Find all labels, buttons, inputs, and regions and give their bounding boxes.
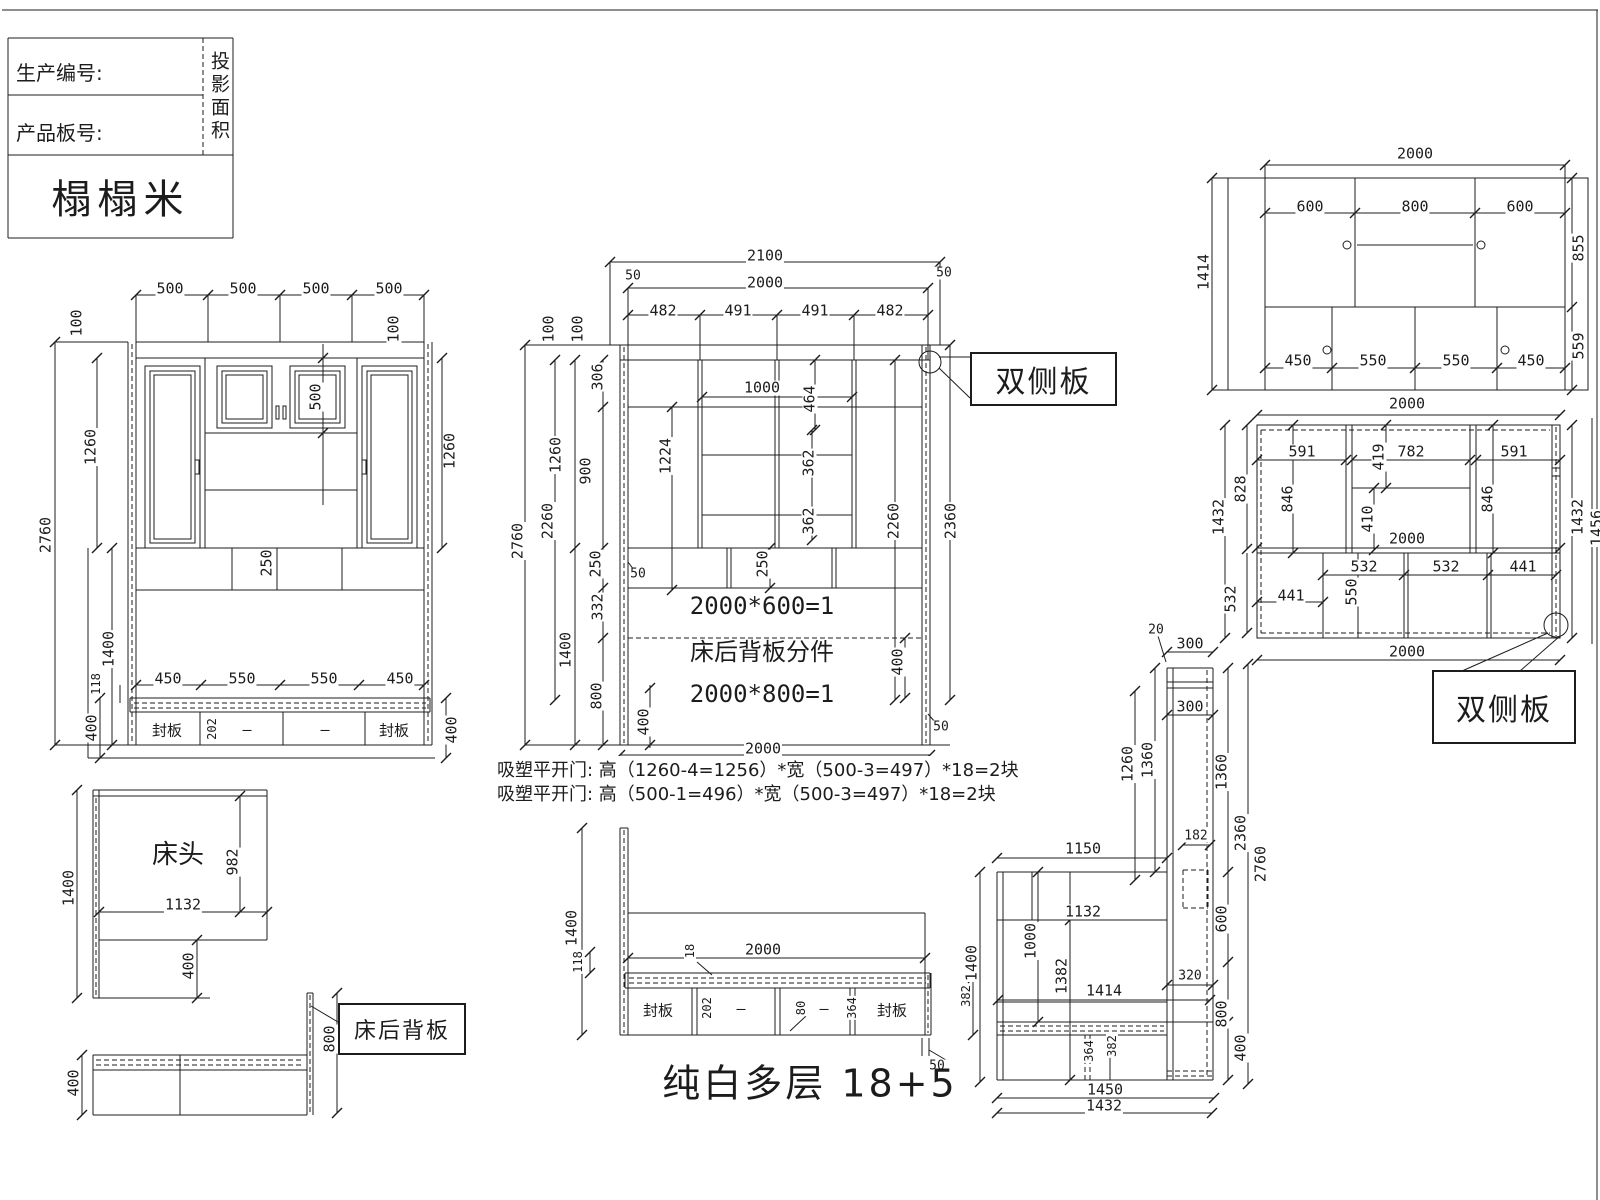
part-label: 封板 xyxy=(642,1004,674,1019)
dim-label: 482 xyxy=(875,304,904,319)
dim-label: 1400 xyxy=(559,631,574,669)
door-spec-note-2: 吸塑平开门: 高（500-1=496）*宽（500-3=497）*18=2块 xyxy=(497,780,996,806)
dim-label: 382 xyxy=(960,984,972,1008)
dim-label: 2000*600=1 xyxy=(689,594,836,618)
part-label: — xyxy=(818,1002,829,1017)
dim-label: 364 xyxy=(1083,1039,1095,1063)
dim-label: 2260 xyxy=(887,502,902,540)
dim-label: 2760 xyxy=(1254,845,1269,883)
dim-label: 800 xyxy=(1215,999,1230,1028)
dim-label: 1414 xyxy=(1085,984,1123,999)
dim-label: 2000 xyxy=(1388,645,1426,660)
part-label: 封板 xyxy=(151,724,183,739)
dim-label: 2760 xyxy=(39,516,54,554)
dim-label: 550 xyxy=(309,672,338,687)
dim-label: 250 xyxy=(756,549,771,578)
callout-bed-back-panel: 床后背板 xyxy=(338,1003,466,1055)
production-no-label: 生产编号: xyxy=(16,57,103,86)
dim-label: 532 xyxy=(1431,560,1460,575)
dim-label: 2760 xyxy=(511,522,526,560)
callout-double-side-panel-1: 双侧板 xyxy=(970,352,1117,406)
dim-label: 1260 xyxy=(549,436,564,474)
dim-label: 2000 xyxy=(744,943,782,958)
dim-label: 2000 xyxy=(746,276,784,291)
callout-double-side-panel-2: 双侧板 xyxy=(1432,670,1576,744)
dim-label: 500 xyxy=(155,282,184,297)
dim-label: 300 xyxy=(1175,637,1204,652)
part-label: 封板 xyxy=(876,1004,908,1019)
dim-label: 250 xyxy=(260,548,275,577)
dim-label: 1360 xyxy=(1215,753,1230,791)
dim-label: 1432 xyxy=(1085,1099,1123,1114)
dim-label: 600 xyxy=(1295,200,1324,215)
dim-label: 118 xyxy=(90,672,102,696)
dim-label: 2000 xyxy=(1388,397,1426,412)
dim-label: 1260 xyxy=(1121,745,1136,783)
dim-label: 1432 xyxy=(1212,498,1227,536)
part-label: — xyxy=(241,723,252,738)
dim-label: 591 xyxy=(1499,445,1528,460)
door-spec-note-1: 吸塑平开门: 高（1260-4=1256）*宽（500-3=497）*18=2块 xyxy=(497,756,1019,782)
dim-label: 600 xyxy=(1505,200,1534,215)
dim-label: 800 xyxy=(1400,200,1429,215)
dim-label: 982 xyxy=(226,847,241,876)
dim-label: 1414 xyxy=(1197,253,1212,291)
dim-label: 1000 xyxy=(743,381,781,396)
dim-label: 550 xyxy=(1345,577,1360,606)
dim-label: 400 xyxy=(182,951,197,980)
cad-sheet: 生产编号: 产品板号: 投影面积 榻榻米 双侧板 双侧板 床后背板 吸塑平开门:… xyxy=(0,0,1600,1200)
dim-label: 2000 xyxy=(1388,532,1426,547)
part-label: — xyxy=(735,1002,746,1017)
dim-label: 18 xyxy=(684,943,696,959)
dim-label: 50 xyxy=(629,568,647,581)
dim-label: 1400 xyxy=(965,944,980,982)
dim-label: 320 xyxy=(1177,970,1202,983)
dim-label: 100 xyxy=(571,314,586,343)
dim-label: 20 xyxy=(1147,624,1165,637)
material-spec-title: 纯白多层 18+5 xyxy=(662,1053,957,1108)
dim-label: 450 xyxy=(1283,354,1312,369)
dim-label: 500 xyxy=(374,282,403,297)
dim-label: 80 xyxy=(795,1000,807,1016)
dim-label: 450 xyxy=(153,672,182,687)
dim-label: 362 xyxy=(802,506,817,535)
dim-label: 306 xyxy=(591,362,606,391)
part-label: 床头 xyxy=(151,842,205,868)
dim-label: 846 xyxy=(1281,484,1296,513)
dim-label: 1224 xyxy=(659,437,674,475)
dim-label: 828 xyxy=(1234,474,1249,503)
dim-label: 100 xyxy=(542,314,557,343)
dim-label: 2000 xyxy=(1396,147,1434,162)
dim-label: 855 xyxy=(1572,233,1587,262)
dim-label: 600 xyxy=(1215,904,1230,933)
dim-label: 202 xyxy=(701,996,713,1020)
dim-label: 400 xyxy=(85,713,100,742)
dim-label: 441 xyxy=(1508,560,1537,575)
dim-label: 464 xyxy=(803,384,818,413)
dim-label: 491 xyxy=(800,304,829,319)
dim-label: 100 xyxy=(387,314,402,343)
dim-label: 2000*800=1 xyxy=(689,682,836,706)
dim-label: 50 xyxy=(624,270,642,283)
dim-label: 846 xyxy=(1481,484,1496,513)
dim-label: 2260 xyxy=(541,502,556,540)
dim-label: 382 xyxy=(1106,1034,1118,1058)
dim-label: 364 xyxy=(846,996,858,1020)
dim-label: 491 xyxy=(723,304,752,319)
dim-label: 250 xyxy=(589,549,604,578)
dim-label: 900 xyxy=(579,456,594,485)
dim-label: 1450 xyxy=(1086,1083,1124,1098)
dim-label: 2360 xyxy=(1234,814,1249,852)
dim-label: 202 xyxy=(206,717,218,741)
dim-label: 532 xyxy=(1224,584,1239,613)
dim-label: 1132 xyxy=(1064,905,1102,920)
dim-label: 400 xyxy=(891,647,906,676)
dim-label: 500 xyxy=(301,282,330,297)
dim-label: 50 xyxy=(932,721,950,734)
dim-label: 500 xyxy=(309,382,324,411)
dim-label: 800 xyxy=(590,681,605,710)
part-label: — xyxy=(319,723,330,738)
dim-label: 182 xyxy=(1183,830,1208,843)
dim-label: 550 xyxy=(1358,354,1387,369)
product-name-title: 榻榻米 xyxy=(8,156,233,236)
dim-label: 500 xyxy=(228,282,257,297)
dim-label: 450 xyxy=(1516,354,1545,369)
dim-label: 332 xyxy=(591,592,606,621)
dim-label: 118 xyxy=(572,950,584,974)
dim-label: 300 xyxy=(1175,700,1204,715)
dim-label: 2100 xyxy=(746,249,784,264)
dim-label: 1150 xyxy=(1064,842,1102,857)
projection-area-label: 投影面积 xyxy=(204,40,233,153)
dim-label: 441 xyxy=(1276,589,1305,604)
dim-label: 1132 xyxy=(164,898,202,913)
dim-label: 782 xyxy=(1396,445,1425,460)
dim-label: 550 xyxy=(1441,354,1470,369)
dim-label: 450 xyxy=(385,672,414,687)
dim-label: 400 xyxy=(67,1068,82,1097)
dim-label: 1260 xyxy=(443,432,458,470)
dim-label: 591 xyxy=(1287,445,1316,460)
part-label: 封板 xyxy=(378,724,410,739)
dim-label: 400 xyxy=(637,707,652,736)
dim-label: 800 xyxy=(323,1024,338,1053)
product-board-no-label: 产品板号: xyxy=(16,117,103,146)
dim-label: 482 xyxy=(648,304,677,319)
part-label: 床后背板分件 xyxy=(689,640,835,664)
dim-label: 1400 xyxy=(62,869,77,907)
dim-label: 50 xyxy=(935,267,953,280)
dim-label: 400 xyxy=(445,715,460,744)
dim-label: 1400 xyxy=(102,630,117,668)
dim-label: 1260 xyxy=(84,428,99,466)
dim-label: 2360 xyxy=(944,502,959,540)
dim-label: 400 xyxy=(1234,1033,1249,1062)
dim-label: 1432 xyxy=(1571,498,1586,536)
dim-label: 559 xyxy=(1572,331,1587,360)
dim-label: 550 xyxy=(227,672,256,687)
dim-label: 362 xyxy=(802,448,817,477)
dim-label: 100 xyxy=(70,308,85,337)
dim-label: 410 xyxy=(1361,504,1376,533)
dim-label: 1382 xyxy=(1055,957,1070,995)
dim-label: 1000 xyxy=(1024,922,1039,960)
dim-label: 2000 xyxy=(744,742,782,757)
dim-label: 532 xyxy=(1349,560,1378,575)
dim-label: 1400 xyxy=(565,909,580,947)
dim-label: 419 xyxy=(1372,442,1387,471)
dim-label: 1456 xyxy=(1590,509,1600,547)
dim-label: 1360 xyxy=(1141,741,1156,779)
